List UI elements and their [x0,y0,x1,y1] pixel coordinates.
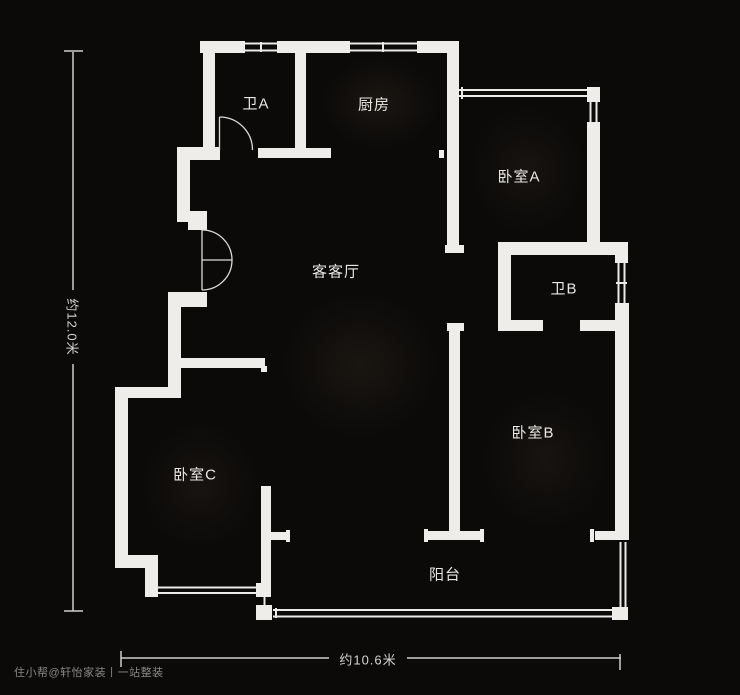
walls [115,41,629,620]
room-label-bedroom-a: 卧室A [497,166,540,187]
wall-kitchen-door-cap [439,150,444,158]
wall-bathB-bottom-left [511,320,543,331]
room-label-balcony: 阳台 [429,564,461,585]
windows [158,42,627,618]
wall-top-1 [200,41,245,53]
room-label-kitchen: 厨房 [358,94,390,115]
wall-bedB-right [615,303,629,532]
wall-bedC-jog2 [145,568,158,597]
wall-bedB-bottom-barL [428,531,480,540]
wall-left-2 [168,292,207,307]
wall-bathB-right-c1 [615,255,628,263]
wall-balcony-stub-left-cap [286,530,290,542]
wall-balcony-stub-left [271,532,287,540]
floorplan-canvas: 卫A 厨房 卧室A 客客厅 卫B 卧室B 卧室C 阳台 约12.0米 约10.6… [0,0,740,695]
door-entry-arc-top [202,230,232,260]
wall-kitchen-bottom [258,148,331,158]
room-label-bedroom-b: 卧室B [511,422,554,443]
wall-bathB-left [498,255,511,331]
wall-bedB-bottom-barR-t [590,529,594,542]
dimension-width-label: 约10.6米 [339,650,396,669]
wall-bedA-corner [587,87,600,102]
wall-balcony-blockL2 [256,605,272,620]
wall-balcony-blockL1 [256,583,271,597]
door-bathA-arc [220,117,253,150]
wall-bedB-bottom-barL-t1 [424,529,428,542]
wall-bedB-bottom-barL-t2 [480,529,484,542]
room-label-living: 客客厅 [312,261,360,282]
wall-bedA-right [587,122,600,243]
wall-top-2 [277,41,350,53]
wall-bedB-left-cap [447,323,464,331]
wall-bedB-bottom-barR [595,531,629,540]
wall-left-step1 [177,211,207,222]
wall-balcony-cornerR [612,607,628,620]
watermark-text: 住小帮@轩怡家装丨一站整装 [14,664,164,680]
room-label-bath-a: 卫A [242,93,269,114]
wall-bedC-right [261,486,271,597]
wall-right-upper-cap [445,245,464,253]
wall-bathA-kitchen-divider [295,53,306,148]
wall-left-1 [177,160,190,211]
wall-left-3 [168,307,181,398]
wall-bathB-top [498,242,628,255]
wall-bedC-jog1 [115,555,158,568]
wall-living-bedC-divider [180,358,265,368]
dimension-height-label: 约12.0米 [64,298,83,355]
wall-bathA-bottom-step [177,147,220,160]
door-entry-arc-bottom [202,260,232,290]
wall-bedC-top [115,387,180,398]
room-label-bedroom-c: 卧室C [173,464,217,485]
wall-left-step2 [188,222,207,230]
wall-bathA-left [203,53,215,148]
wall-living-bedC-cap [261,366,267,372]
wall-right-upper [447,41,459,245]
wall-bedB-left [449,331,460,538]
wall-bathB-bottom-right [580,320,615,331]
room-label-bath-b: 卫B [550,278,577,299]
wall-bedC-left [115,398,128,557]
